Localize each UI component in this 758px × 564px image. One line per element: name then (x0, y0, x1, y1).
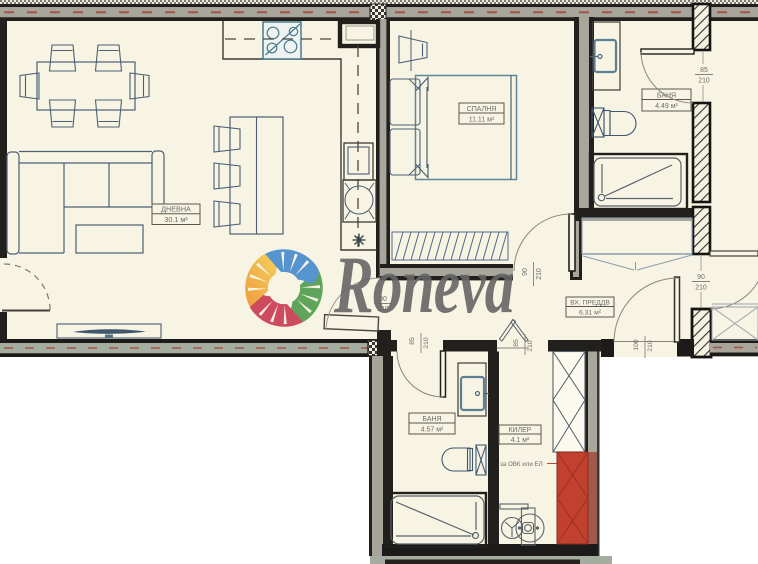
svg-text:4.49 м²: 4.49 м² (655, 103, 678, 110)
svg-text:ВХ. ПРЕДДВ: ВХ. ПРЕДДВ (570, 299, 610, 306)
svg-text:БАНЯ: БАНЯ (422, 416, 441, 423)
svg-text:210: 210 (695, 285, 707, 292)
svg-text:210: 210 (527, 340, 534, 351)
svg-text:90: 90 (522, 268, 529, 276)
svg-text:85: 85 (513, 339, 520, 347)
svg-text:210: 210 (698, 78, 710, 85)
svg-text:100: 100 (633, 339, 640, 350)
svg-text:30.1 м²: 30.1 м² (164, 215, 188, 224)
svg-text:КИЛЕР: КИЛЕР (509, 427, 532, 434)
svg-text:6.31 м²: 6.31 м² (579, 309, 602, 316)
svg-text:210: 210 (647, 340, 654, 351)
svg-text:за ОВК или ЕЛ: за ОВК или ЕЛ (500, 461, 543, 468)
svg-text:11.11 м²: 11.11 м² (469, 117, 495, 124)
svg-text:85: 85 (409, 337, 416, 345)
svg-text:ДНЕВНА: ДНЕВНА (161, 205, 191, 214)
svg-text:СПАЛНЯ: СПАЛНЯ (467, 106, 497, 113)
svg-text:90: 90 (697, 274, 705, 281)
svg-text:4.57 м²: 4.57 м² (421, 427, 444, 434)
svg-text:85: 85 (700, 67, 708, 74)
svg-text:4.1 м²: 4.1 м² (511, 437, 530, 444)
svg-text:Roneva: Roneva (333, 240, 514, 330)
svg-text:210: 210 (423, 337, 430, 348)
svg-text:210: 210 (536, 268, 543, 280)
